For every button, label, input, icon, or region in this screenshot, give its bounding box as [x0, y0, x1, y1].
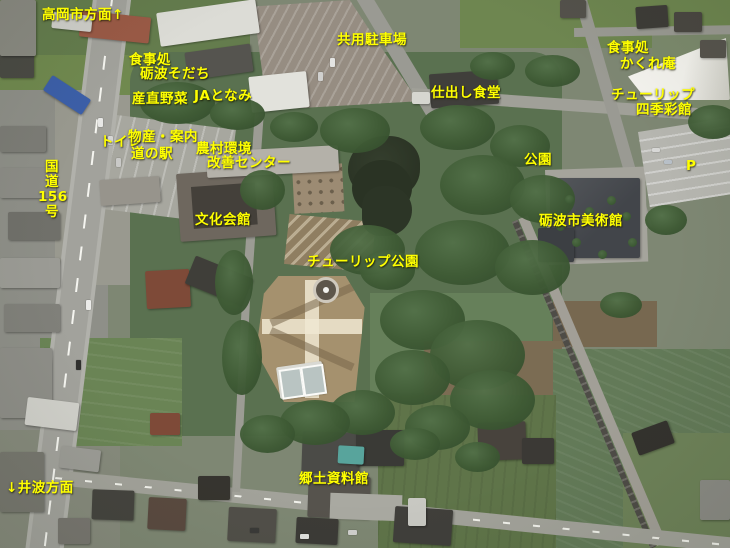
map-label-restaurant-kakurean-line1: 食事処: [607, 41, 649, 56]
map-label-michi-no-eki: 道の駅: [131, 147, 173, 162]
map-label-park-label: 公園: [524, 153, 552, 168]
map-label-ja-tonami: JAとなみ: [194, 89, 252, 104]
map-label-tulip-shikisaikan-line1: チューリップ: [611, 88, 695, 103]
map-label-restaurant-tonamisodachi-line2: 砺波そだち: [140, 67, 210, 82]
map-label-inami-direction: ↓井波方面: [6, 481, 74, 496]
map-label-shared-parking: 共用駐車場: [337, 33, 407, 48]
map-label-bunka-kaikan: 文化会館: [195, 213, 251, 228]
map-label-kyodo-shiryokan: 郷土資料館: [299, 472, 369, 487]
annotation-layer: 高岡市方面↑食事処砺波そだち産直野菜JAとなみ共用駐車場仕出し食堂食事処かくれ庵…: [0, 0, 730, 548]
map-label-national-route-156: 国 道 156 号: [38, 160, 66, 220]
map-label-sanchoku-yasai: 産直野菜: [132, 92, 188, 107]
map-label-tonami-art-museum: 砺波市美術館: [539, 214, 623, 229]
map-label-bussan-annai: 物産・案内: [128, 130, 198, 145]
map-label-shidashi-shokudo: 仕出し食堂: [431, 86, 501, 101]
map-label-restaurant-kakurean-line2: かくれ庵: [620, 57, 676, 72]
map-label-tulip-shikisaikan-line2: 四季彩館: [636, 103, 692, 118]
map-label-parking-p: P: [686, 159, 696, 174]
map-label-takaoka-direction: 高岡市方面↑: [42, 8, 124, 23]
map-label-tulip-park: チューリップ公園: [307, 255, 419, 270]
aerial-map-canvas: 高岡市方面↑食事処砺波そだち産直野菜JAとなみ共用駐車場仕出し食堂食事処かくれ庵…: [0, 0, 730, 548]
map-label-kaizen-center: 改善センター: [207, 156, 291, 171]
